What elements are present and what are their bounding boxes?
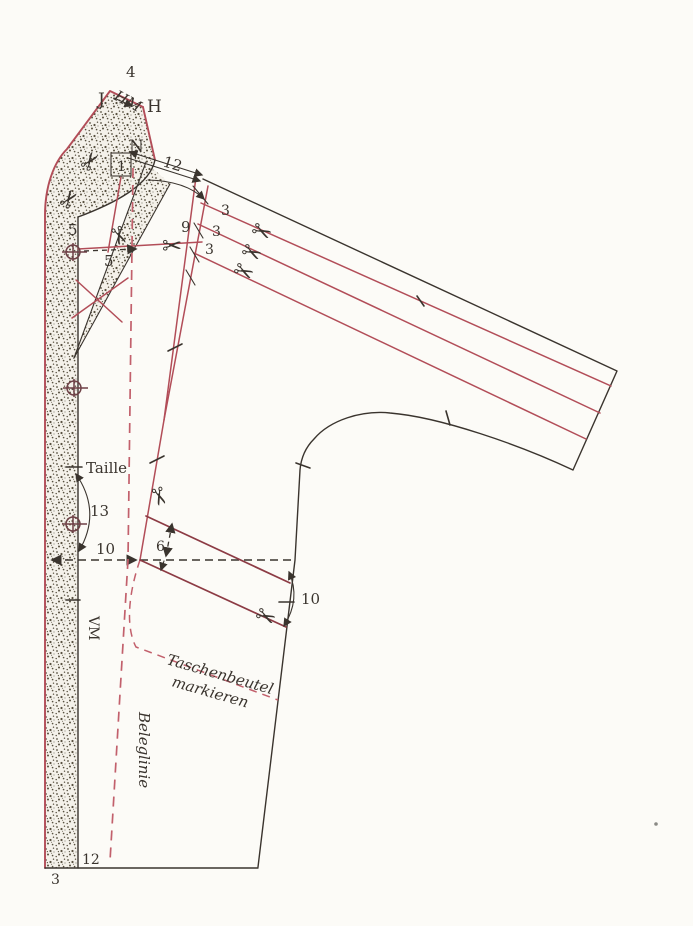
label-six: 6 (156, 539, 165, 555)
pocket-width-arrow (166, 524, 172, 556)
sleeve-red-line-3 (194, 253, 586, 439)
label-thirteen: 13 (90, 502, 109, 520)
label-taille: Taille (86, 459, 127, 477)
scanned-pattern-page: ✂ ✂ ✂ ✂ ✂ ✂ ✂ ✂ ✂ 4 HM J H N 1 12 9 3 3 … (0, 0, 693, 926)
label-five-lower: 5 (104, 252, 114, 270)
body-sleeve-outline (203, 179, 617, 867)
label-hem-three: 3 (51, 872, 60, 888)
label-three-2: 3 (212, 224, 221, 240)
label-ten-side: 10 (301, 590, 320, 608)
label-five-upper: 5 (68, 221, 78, 239)
underarm-tick (296, 463, 310, 468)
label-three-1: 3 (221, 203, 230, 219)
label-four: 4 (126, 63, 136, 81)
label-one: 1 (117, 159, 126, 175)
scissors-icon: ✂ (142, 483, 175, 511)
label-three-3: 3 (205, 242, 214, 258)
panel-seam-tick-1 (168, 344, 182, 351)
pocket-width-arrow-tail (161, 561, 164, 570)
label-vm: VM (85, 615, 101, 640)
scissors-icon: ✂ (162, 232, 182, 260)
print-speck (654, 822, 658, 826)
label-n: N (129, 137, 144, 157)
scissors-icon: ✂ (250, 600, 281, 634)
chest-cut-red-line (78, 242, 202, 249)
label-twelve: 12 (161, 153, 185, 176)
label-hem-twelve: 12 (82, 852, 100, 868)
sleeve-line-tick (417, 296, 424, 306)
label-ten-waist: 10 (96, 540, 115, 558)
label-j: J (96, 90, 105, 110)
sewing-pattern-diagram: ✂ ✂ ✂ ✂ ✂ ✂ ✂ ✂ ✂ 4 HM J H N 1 12 9 3 3 … (0, 0, 693, 926)
label-h: H (147, 97, 162, 117)
label-nine: 9 (181, 218, 191, 236)
label-beleglinie: Beleglinie (135, 711, 153, 788)
